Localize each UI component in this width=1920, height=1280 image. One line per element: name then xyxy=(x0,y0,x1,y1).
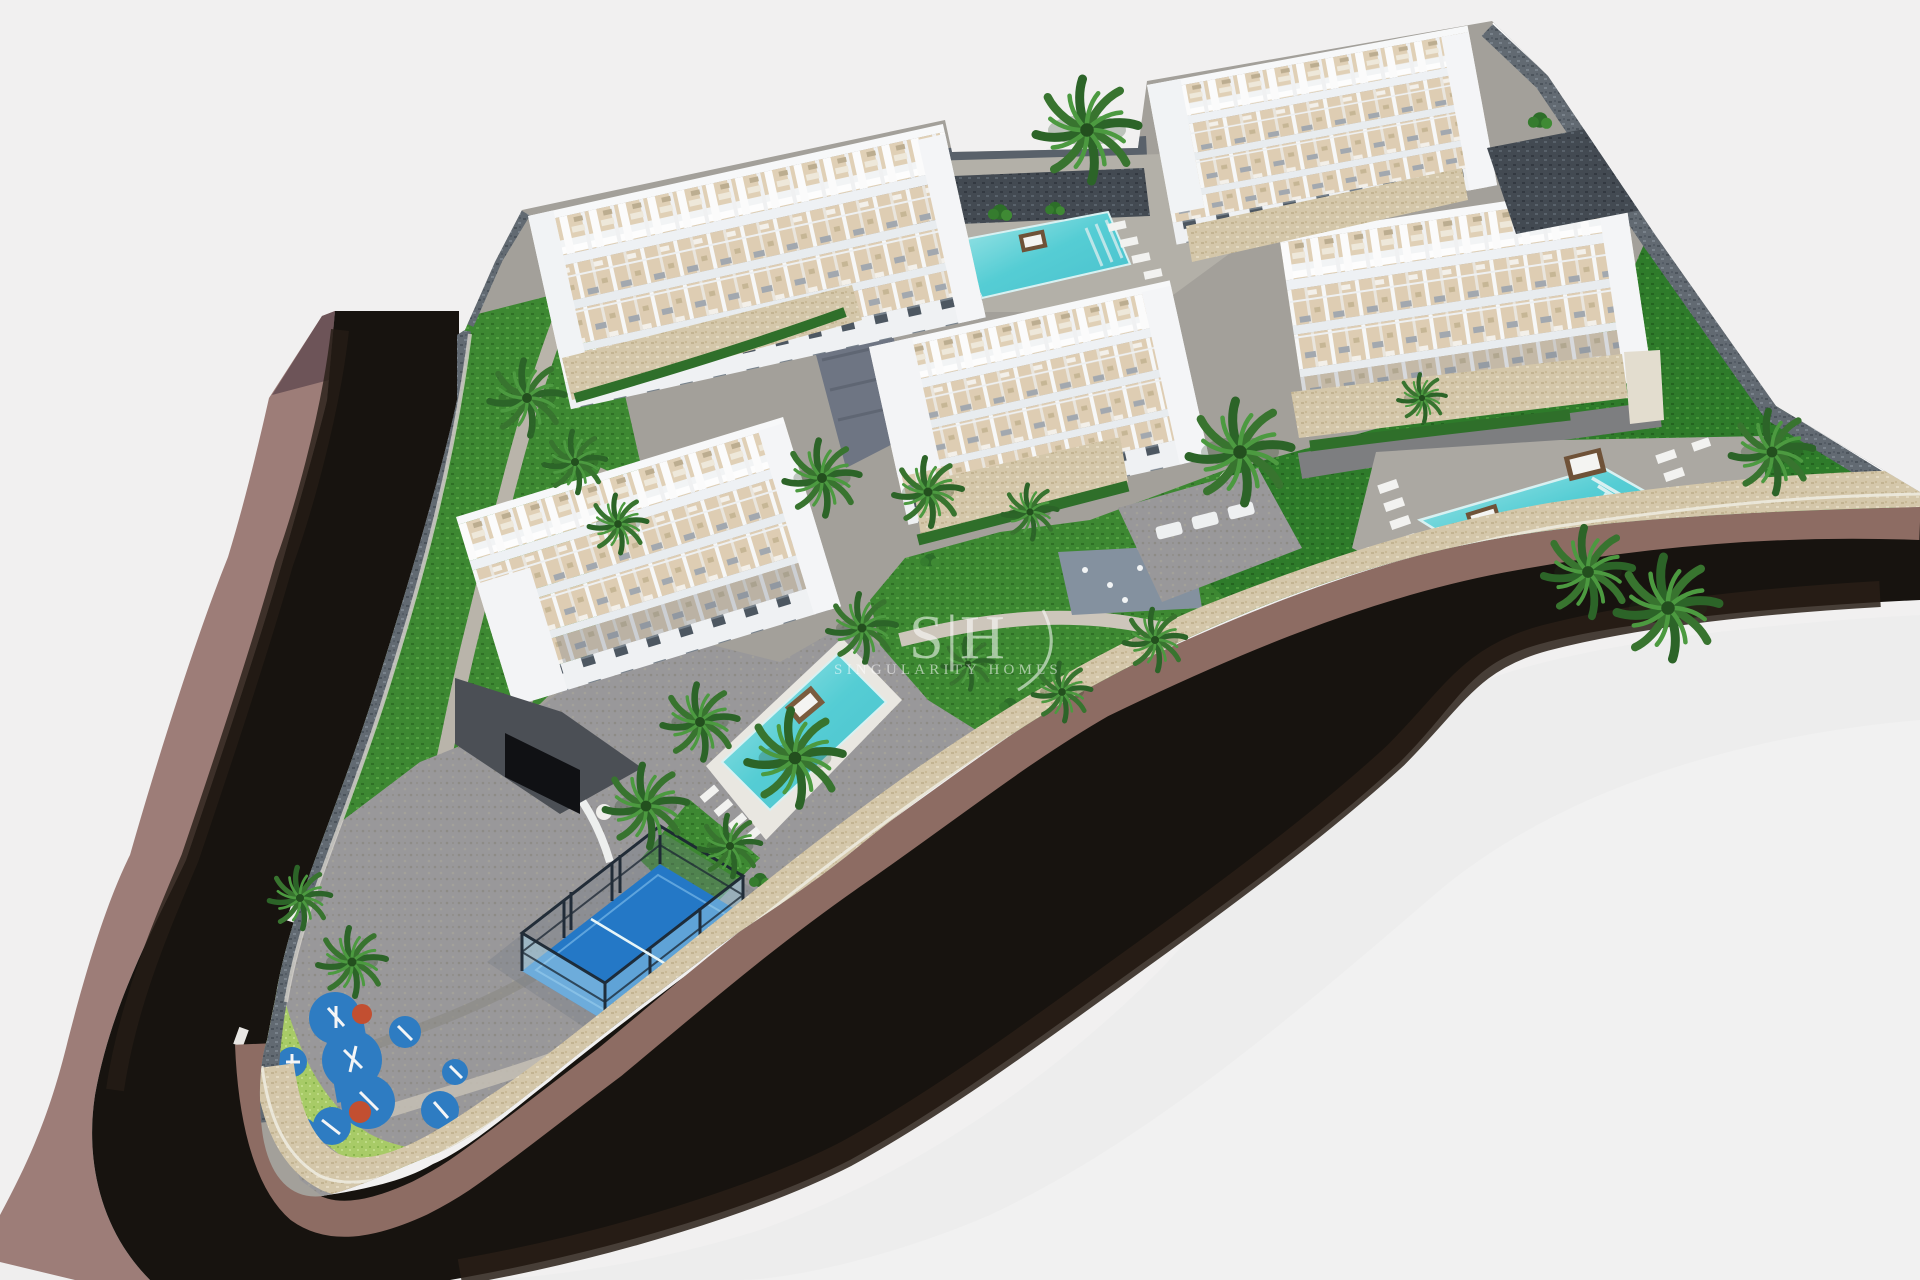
svg-text:SINGULARITY HOMES: SINGULARITY HOMES xyxy=(834,662,1062,678)
